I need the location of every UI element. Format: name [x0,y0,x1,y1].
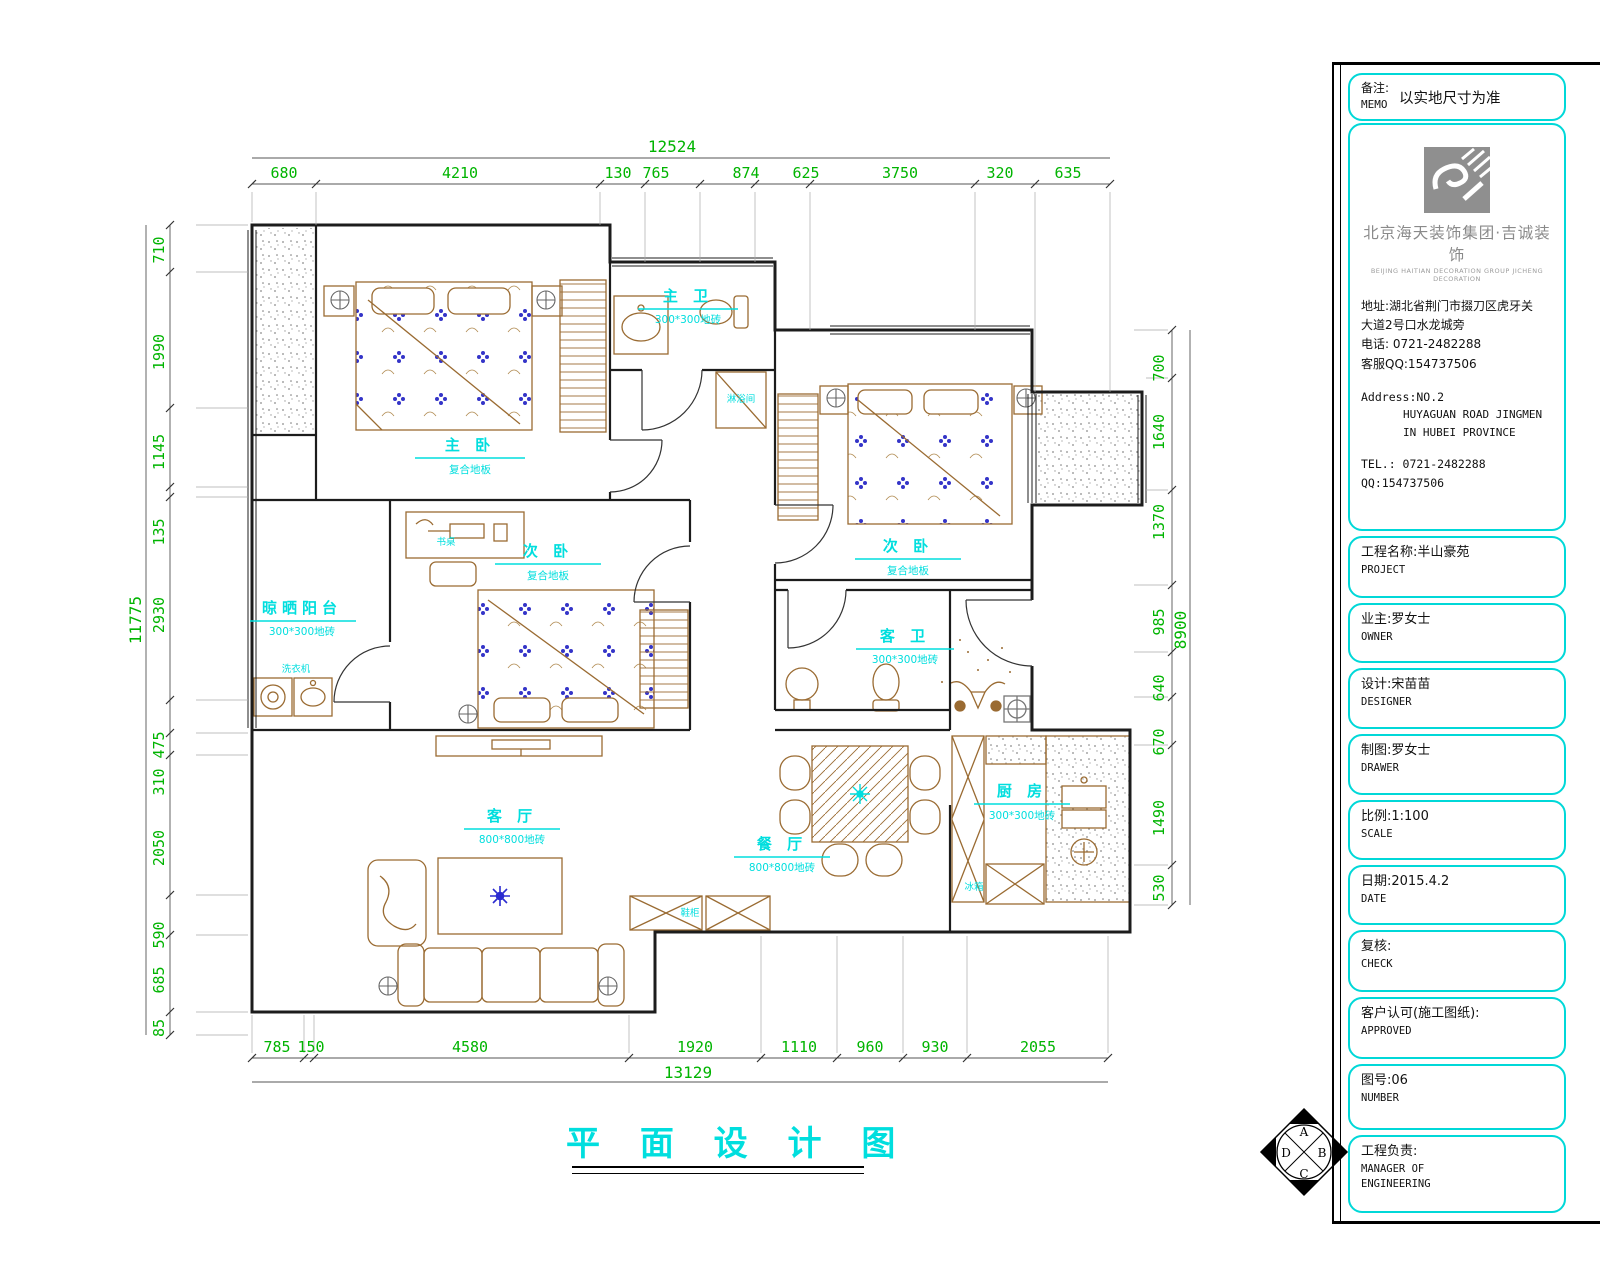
svg-text:餐 厅: 餐 厅 [757,835,807,853]
company-qq: 客服QQ:154737506 [1361,355,1553,374]
dining-flower-motif [850,784,870,804]
desk [406,512,524,586]
field-owner: 业主:罗女士 OWNER [1348,603,1566,663]
dim-top-5: 625 [792,164,819,182]
dim-left-1: 1990 [150,334,168,370]
compass-letter-d: D [1281,1146,1291,1160]
field-check: 复核: CHECK [1348,930,1566,992]
company-box: 北京海天装饰集团·吉诚装饰 BEIJING HAITIAN DECORATION… [1348,123,1566,531]
room-label-living-room: 客 厅 800*800地砖 [464,807,560,846]
title-underline [572,1166,864,1168]
svg-text:复合地板: 复合地板 [449,463,491,476]
company-address-en-3: IN HUBEI PROVINCE [1361,424,1553,442]
compass-letter-a: A [1299,1125,1309,1139]
compass-letter-b: B [1318,1146,1327,1160]
shoe-cabinet [630,896,770,930]
title-block: 备注: MEMO 以实地尺寸为准 北京海天装饰集团·吉诚装饰 BEIJING H… [1332,62,1600,1224]
dim-bottom-3: 1920 [677,1038,713,1056]
svg-text:300*300地砖: 300*300地砖 [872,653,939,666]
washer-label: 洗衣机 [282,663,311,675]
company-address-2: 大道2号口水龙城旁 [1361,316,1553,335]
company-tel-en: TEL.: 0721-2482288 [1361,455,1553,473]
field-project: 工程名称:半山豪苑 PROJECT [1348,536,1566,598]
dim-right-3: 985 [1150,608,1168,635]
svg-text:复合地板: 复合地板 [527,569,569,582]
dim-bottom-4: 1110 [781,1038,817,1056]
company-address-en-2: HUYAGUAN ROAD JINGMEN [1361,406,1553,424]
room-label-guest-bath: 客 卫 300*300地砖 [856,627,954,666]
dim-bottom-2: 4580 [452,1038,488,1056]
entry-opening [1028,600,1036,666]
dim-right-4: 640 [1150,674,1168,701]
field-approved: 客户认可(施工图纸): APPROVED [1348,997,1566,1059]
svg-text:复合地板: 复合地板 [887,564,929,577]
svg-text:800*800地砖: 800*800地砖 [749,861,816,874]
company-name-en: BEIJING HAITIAN DECORATION GROUP JICHENG… [1361,267,1553,283]
dim-left-9: 685 [150,966,168,993]
company-qq-en: QQ:154737506 [1361,474,1553,492]
dim-bottom-1: 150 [297,1038,324,1056]
furniture-layer [254,280,1130,1006]
field-scale: 比例:1:100 SCALE [1348,800,1566,860]
dim-right-0: 700 [1150,354,1168,381]
master-bed [356,282,532,430]
field-designer: 设计:宋苗苗 DESIGNER [1348,668,1566,729]
dim-bottom-7: 2055 [1020,1038,1056,1056]
sofa-set [368,858,624,1006]
company-address-en-1: Address:NO.2 [1361,388,1553,406]
drawing-sheet: 12524 680 4210 130 765 874 625 3750 320 … [0,0,1600,1280]
memo-label-en: MEMO [1361,97,1389,113]
dim-bottom-0: 785 [263,1038,290,1056]
dim-left-total: 11775 [126,596,145,644]
memo-label-cn: 备注: [1361,81,1389,97]
svg-text:300*300地砖: 300*300地砖 [989,809,1056,822]
dim-left-4: 2930 [150,597,168,633]
dim-top-2: 130 [604,164,631,182]
dim-left-0: 710 [150,236,168,263]
dim-right-7: 530 [1150,874,1168,901]
dim-top-1: 4210 [442,164,478,182]
nightstand [820,386,848,414]
memo-box: 备注: MEMO 以实地尺寸为准 [1348,73,1566,121]
shoe-cabinet-label: 鞋柜 [680,907,700,919]
wardrobe [560,280,606,432]
field-drawer: 制图:罗女士 DRAWER [1348,734,1566,795]
dim-top-4: 874 [732,164,759,182]
floor-plan-canvas: 12524 680 4210 130 765 874 625 3750 320 … [0,0,1360,1280]
company-phone: 电话: 0721-2482288 [1361,335,1553,354]
living-flower-motif [490,886,510,906]
svg-text:主 卫: 主 卫 [663,287,713,305]
title-block-border [1340,65,1341,1221]
dim-bottom-5: 960 [856,1038,883,1056]
company-name: 北京海天装饰集团·吉诚装饰 [1361,221,1553,265]
second-bed-middle [478,590,654,728]
dim-right-5: 670 [1150,728,1168,755]
dim-right-1: 1640 [1150,414,1168,450]
guest-bath-fixtures [786,664,899,711]
svg-text:客 卫: 客 卫 [879,627,930,645]
room-label-second-bedroom-right: 次 卧 复合地板 [855,537,961,577]
room-label-drying-balcony: 晾晒阳台 300*300地砖 [250,599,356,638]
svg-text:300*300地砖: 300*300地砖 [655,313,722,326]
tv-cabinet [436,736,602,756]
dim-top-3: 765 [642,164,669,182]
svg-text:次 卧: 次 卧 [523,542,573,560]
dim-left-3: 135 [150,518,168,545]
floor-drain [1004,696,1030,722]
second-bed-right [848,384,1012,524]
shower-label: 淋浴间 [727,393,756,405]
dim-right-2: 1370 [1150,504,1168,540]
room-label-master-bedroom: 主 卧 复合地板 [415,436,525,476]
company-logo [1422,145,1492,215]
desk-label: 书桌 [436,536,456,548]
memo-value: 以实地尺寸为准 [1399,87,1501,108]
wardrobe [778,394,818,520]
dim-left-10: 85 [150,1019,168,1037]
wardrobe [640,610,688,708]
dim-top-8: 635 [1054,164,1081,182]
dim-left-5: 475 [150,731,168,758]
field-manager: 工程负责: MANAGER OF ENGINEERING [1348,1135,1566,1213]
field-date: 日期:2015.4.2 DATE [1348,865,1566,925]
svg-text:客 厅: 客 厅 [486,807,537,825]
dim-top-0: 680 [270,164,297,182]
dim-left-7: 2050 [150,830,168,866]
dim-left-8: 590 [150,921,168,948]
dim-top-6: 3750 [882,164,918,182]
washing-machine [254,678,332,716]
dim-right-total: 8900 [1171,611,1190,650]
dim-right-6: 1490 [1150,800,1168,836]
nightstand [324,286,354,316]
dim-top-total: 12524 [648,137,696,156]
drawing-title: 平 面 设 计 图 [566,1116,886,1165]
svg-text:晾晒阳台: 晾晒阳台 [262,599,342,617]
nightstand [532,286,562,316]
field-number: 图号:06 NUMBER [1348,1064,1566,1130]
svg-text:主 卧: 主 卧 [445,436,495,454]
entry-plant [941,639,1011,711]
svg-text:300*300地砖: 300*300地砖 [269,625,336,638]
dim-bottom-total: 13129 [664,1063,712,1082]
company-address-1: 地址:湖北省荆门市掇刀区虎牙关 [1361,297,1553,316]
fridge-label: 冰箱 [964,881,983,893]
dim-top-7: 320 [986,164,1013,182]
svg-text:800*800地砖: 800*800地砖 [479,833,546,846]
title-underline-2 [572,1173,864,1174]
compass-letter-c: C [1299,1167,1308,1181]
dim-bottom-6: 930 [921,1038,948,1056]
dim-left-2: 1145 [150,434,168,470]
dim-left-6: 310 [150,768,168,795]
room-label-master-bath: 主 卫 300*300地砖 [638,287,738,326]
svg-text:次 卧: 次 卧 [883,537,933,555]
svg-text:厨 房: 厨 房 [997,782,1047,800]
